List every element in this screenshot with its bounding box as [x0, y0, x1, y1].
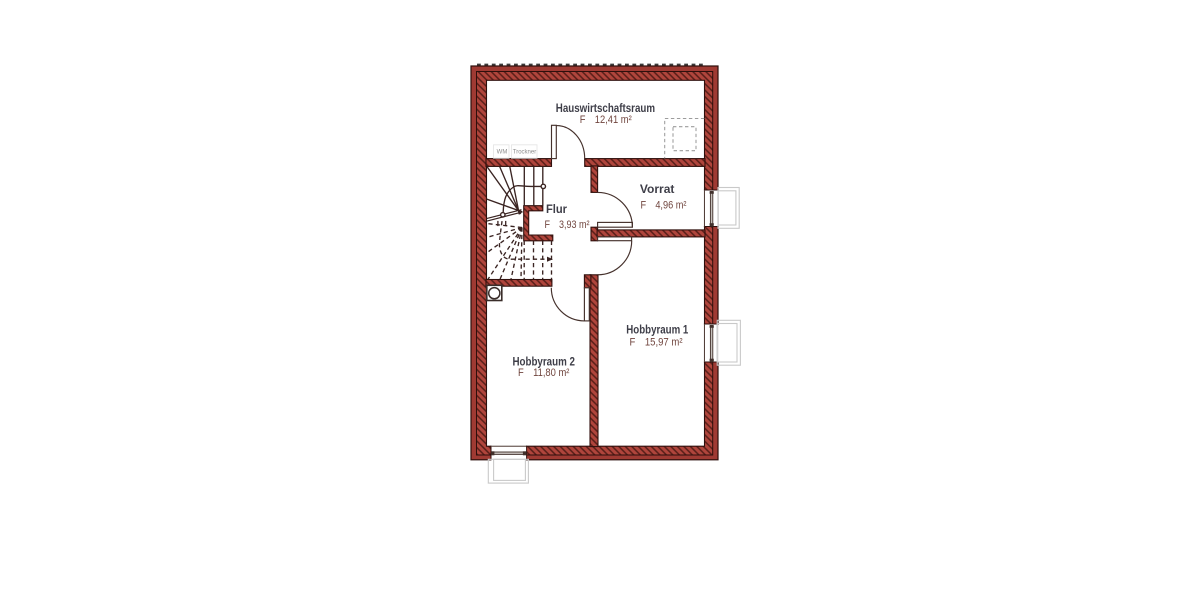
svg-text:F 12,41 m²: F 12,41 m² [580, 114, 632, 126]
svg-text:Vorrat: Vorrat [640, 182, 675, 196]
svg-text:F 11,80 m²: F 11,80 m² [518, 367, 570, 379]
svg-text:WM: WM [497, 150, 508, 156]
svg-text:Flur: Flur [546, 202, 567, 216]
svg-text:Hauswirtschaftsraum: Hauswirtschaftsraum [556, 101, 655, 115]
svg-text:F 3,93 m²: F 3,93 m² [545, 219, 590, 231]
svg-text:F 15,97 m²: F 15,97 m² [630, 336, 683, 348]
svg-text:Hobbyraum 1: Hobbyraum 1 [626, 323, 688, 337]
svg-text:F 4,96 m²: F 4,96 m² [641, 200, 687, 212]
svg-text:Trockner: Trockner [513, 150, 536, 156]
